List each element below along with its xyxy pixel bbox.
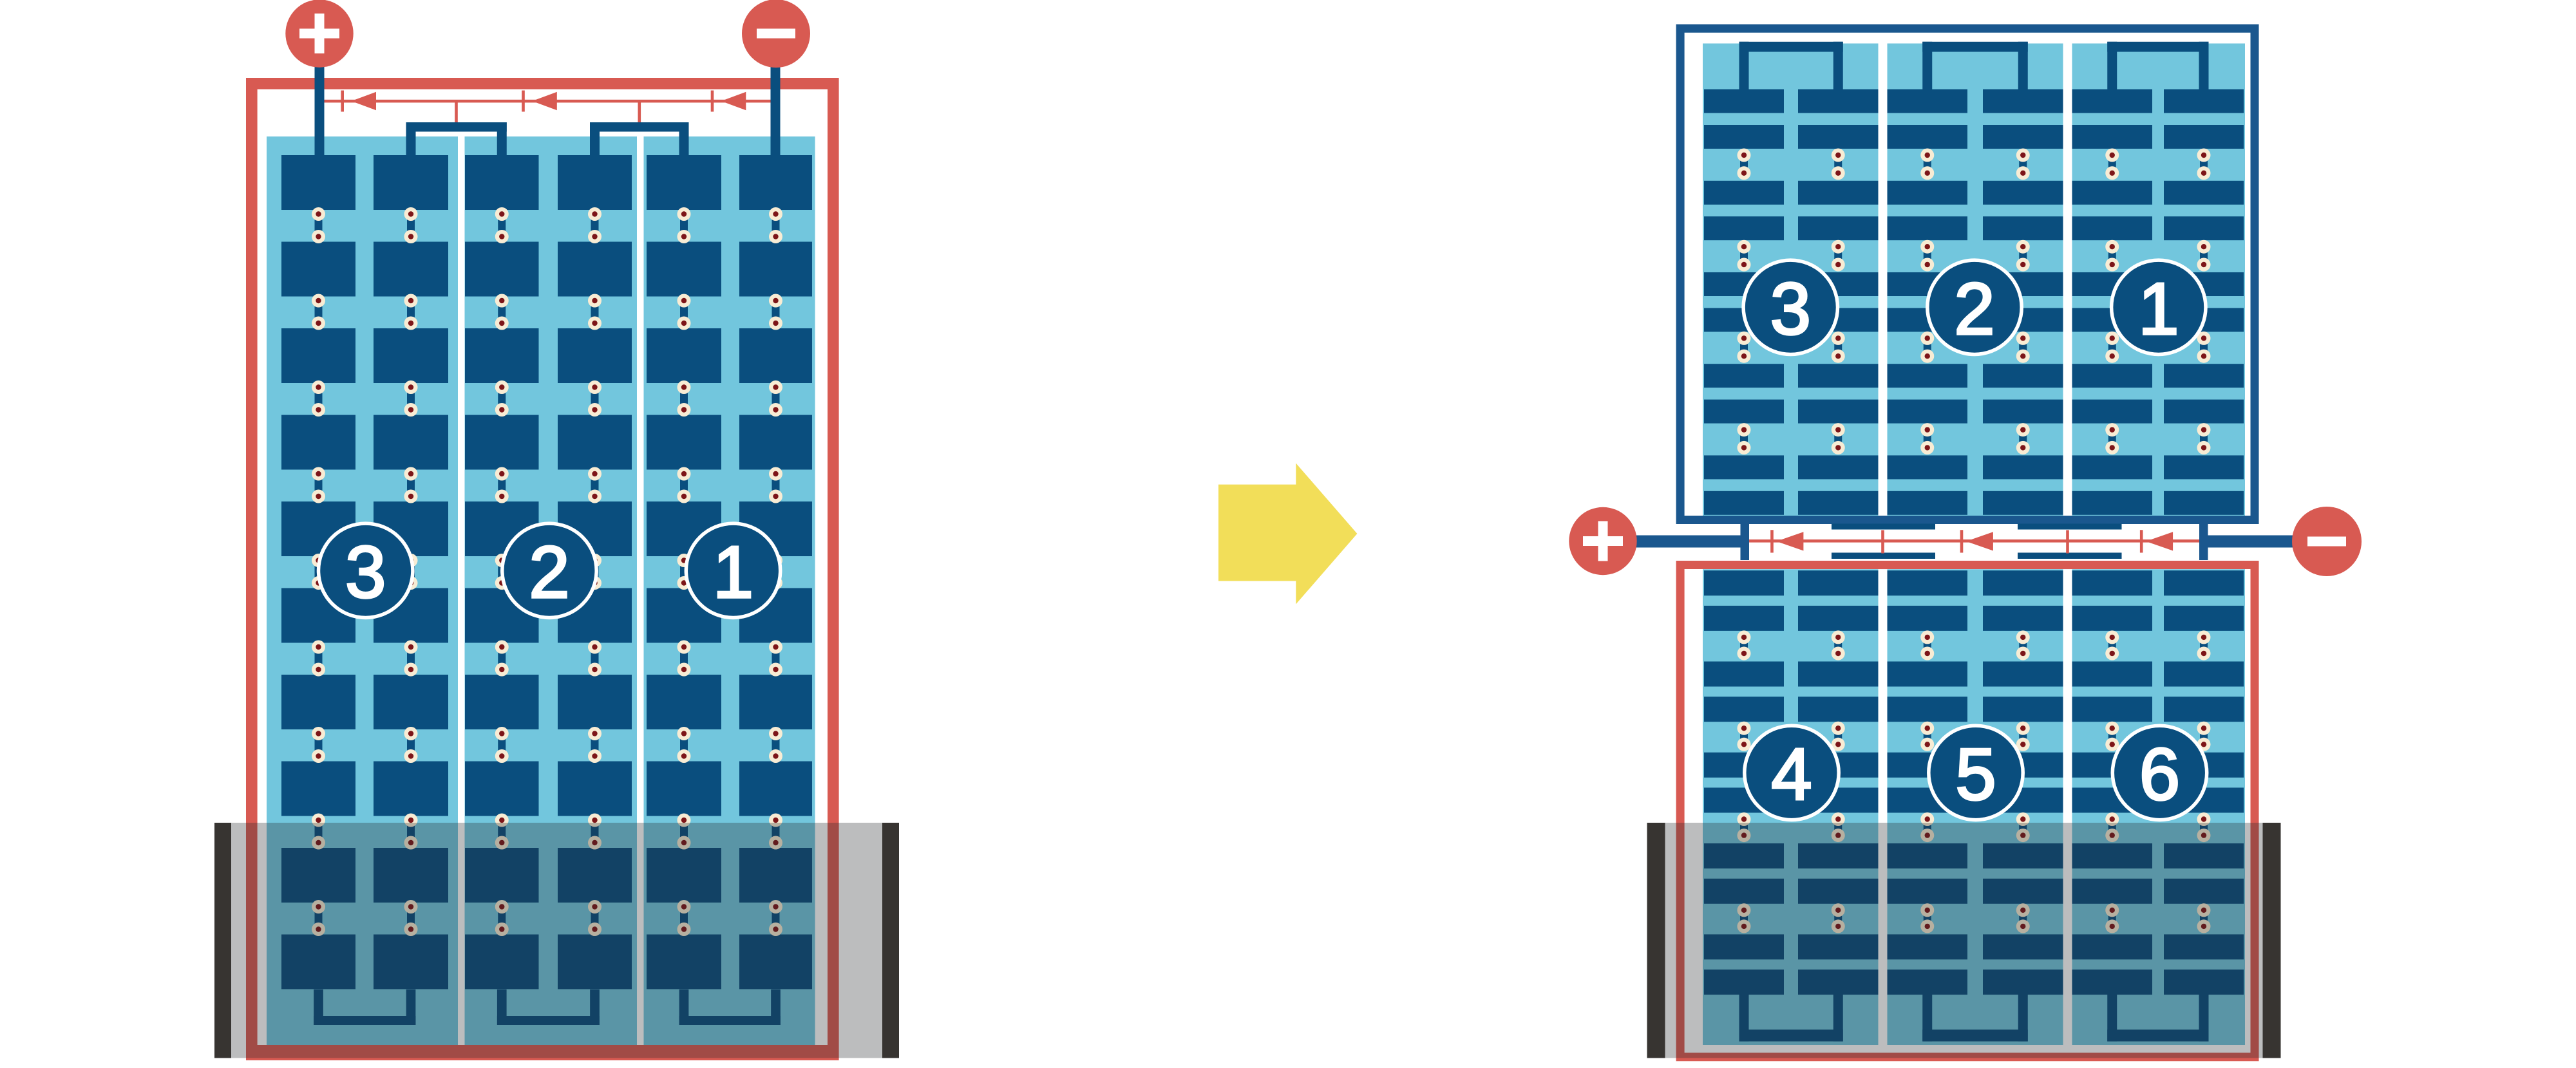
svg-text:2: 2 (529, 532, 569, 614)
svg-text:1: 1 (713, 532, 753, 614)
svg-text:5: 5 (1955, 734, 1996, 816)
svg-text:1: 1 (2138, 268, 2179, 350)
svg-text:4: 4 (1771, 734, 1812, 816)
svg-text:6: 6 (2139, 734, 2180, 816)
svg-text:3: 3 (345, 532, 386, 614)
svg-text:3: 3 (1770, 268, 1811, 350)
svg-text:2: 2 (1954, 268, 1994, 350)
